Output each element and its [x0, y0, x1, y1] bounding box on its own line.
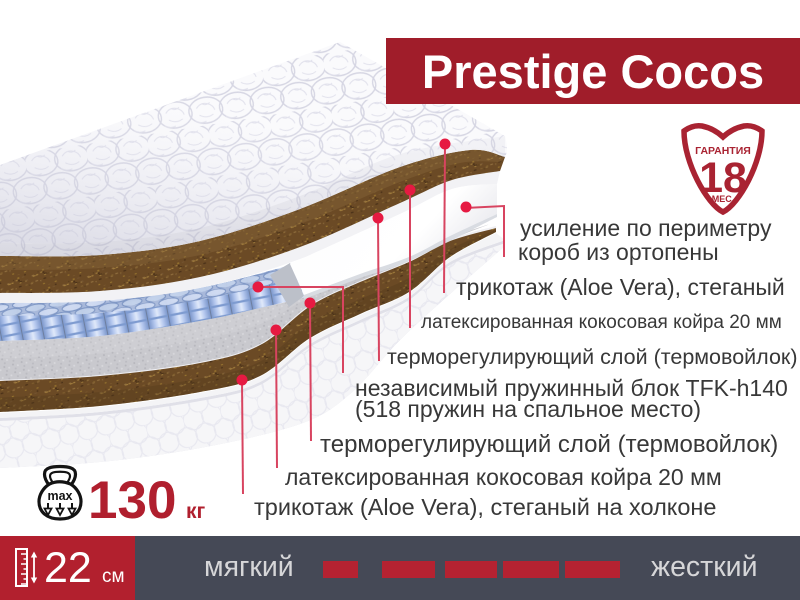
svg-text:терморегулирующий слой (термов: терморегулирующий слой (термовойлок) [320, 431, 778, 458]
svg-text:max: max [47, 489, 72, 503]
svg-text:трикотаж (Aloe Vera), стеганый: трикотаж (Aloe Vera), стеганый [456, 274, 785, 300]
svg-text:МЕС.: МЕС. [712, 194, 735, 204]
svg-text:терморегулирующий слой (термов: терморегулирующий слой (термовойлок) [387, 345, 797, 369]
svg-text:усиление по периметру: усиление по периметру [520, 215, 772, 241]
svg-text:мягкий: мягкий [204, 551, 294, 583]
svg-text:жесткий: жесткий [651, 551, 758, 583]
svg-text:латексированная кокосовая койр: латексированная кокосовая койра 20 мм [421, 312, 782, 333]
svg-text:Prestige Cocos: Prestige Cocos [422, 45, 764, 98]
svg-text:латексированная кокосовая койр: латексированная кокосовая койра 20 мм [285, 464, 722, 490]
svg-text:кг: кг [186, 500, 206, 523]
svg-text:130: 130 [88, 471, 176, 530]
svg-text:см: см [102, 566, 125, 587]
svg-text:(518 пружин на спальное место): (518 пружин на спальное место) [355, 396, 701, 422]
svg-text:короб из ортопены: короб из ортопены [518, 239, 719, 265]
svg-text:трикотаж (Aloe Vera), стеганый: трикотаж (Aloe Vera), стеганый на холкон… [254, 494, 716, 520]
svg-text:22: 22 [44, 544, 92, 592]
